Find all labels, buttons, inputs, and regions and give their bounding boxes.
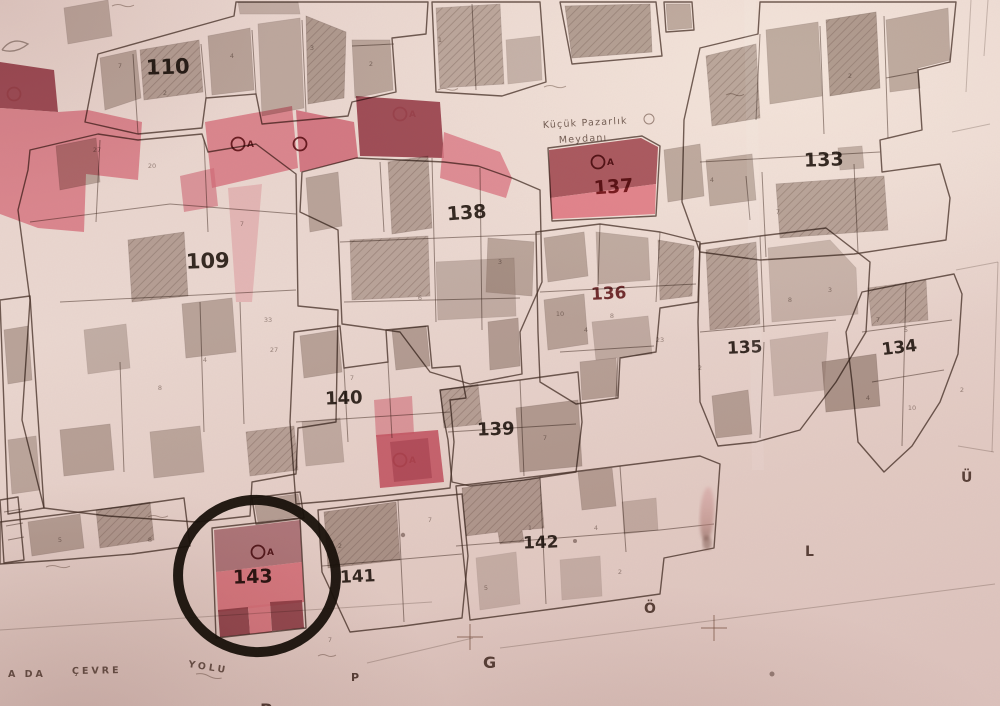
paper-grain	[0, 0, 1000, 706]
map-svg: 110109133138137136135134140139142141143K…	[0, 0, 1000, 706]
cadastral-map-photo: 110109133138137136135134140139142141143K…	[0, 0, 1000, 706]
